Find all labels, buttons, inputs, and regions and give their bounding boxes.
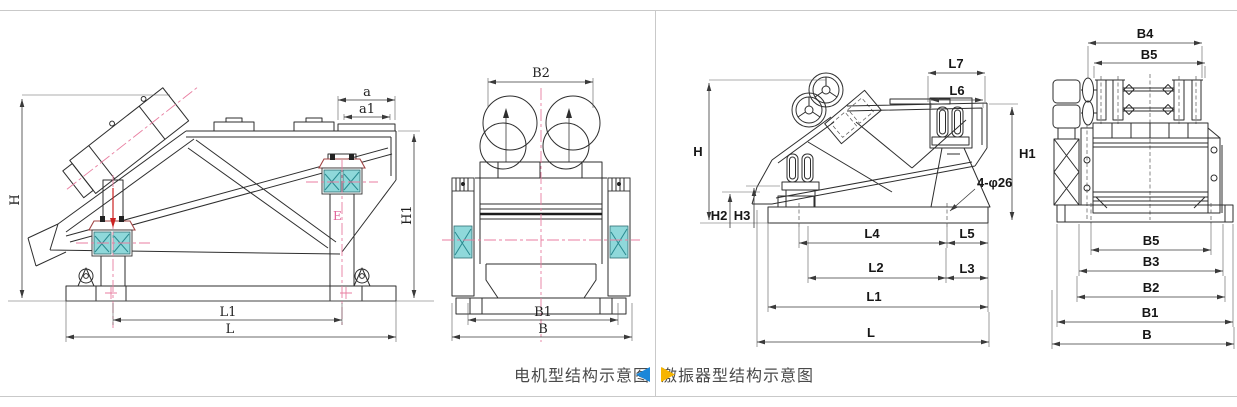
dim-label-H: H <box>8 194 23 205</box>
dim-label-L1: L1 <box>866 289 881 304</box>
dim-label-L5: L5 <box>959 226 974 241</box>
dim-label-B: B <box>1142 327 1151 342</box>
dim-label-a: a <box>363 85 371 100</box>
dim-label-B1: B1 <box>534 305 552 320</box>
dim-label-B2: B2 <box>532 66 550 81</box>
dim-label-L2: L2 <box>868 260 883 275</box>
dim-label-L7: L7 <box>948 56 963 71</box>
dim-label-L3: L3 <box>959 261 974 276</box>
dim-label-L: L <box>867 325 875 340</box>
dim-label-B4: B4 <box>1137 26 1154 41</box>
screen-body-exciter-front <box>1093 123 1222 213</box>
prev-arrow-icon[interactable] <box>636 367 650 382</box>
dim-label-L: L <box>226 322 235 337</box>
drive-motor <box>1053 80 1080 139</box>
dim-label-H2: H2 <box>711 208 728 223</box>
dim-label-H: H <box>693 144 702 159</box>
dim-label-B5-bottom: B5 <box>1143 233 1160 248</box>
dim-label-B2: B2 <box>1143 280 1160 295</box>
dim-label-H1: H1 <box>1019 146 1036 161</box>
dim-label-a1: a1 <box>359 102 375 117</box>
belt-pulleys <box>1081 78 1097 125</box>
dim-label-L4: L4 <box>864 226 880 241</box>
right-side-spring-channel <box>608 178 630 296</box>
motor-type-side-view-drawing: E H H1 a a1 L1 L <box>0 10 440 360</box>
right-caption: 激振器型结构示意图 <box>661 363 1221 385</box>
base-frame <box>66 268 396 301</box>
base-plate <box>768 196 988 227</box>
diagram-page: E H H1 a a1 L1 L <box>0 0 1237 407</box>
motor-stand <box>1054 124 1093 222</box>
bolt-hole-note: 4-φ26 <box>977 175 1012 190</box>
left-side-spring-channel <box>452 178 474 296</box>
motor-type-front-view-drawing: B2 B1 B <box>440 10 660 360</box>
right-caption-label: 激振器型结构示意图 <box>661 362 814 386</box>
dim-label-B: B <box>538 322 548 337</box>
dim-label-E: E <box>333 209 342 223</box>
dim-label-L1: L1 <box>220 305 237 320</box>
left-caption: 电机型结构示意图 <box>0 363 650 385</box>
dim-label-H1: H1 <box>400 205 415 225</box>
dim-label-B3: B3 <box>1143 254 1160 269</box>
dim-label-B5-top: B5 <box>1141 47 1158 62</box>
dim-label-B1: B1 <box>1142 305 1159 320</box>
next-arrow-icon[interactable] <box>661 367 675 382</box>
left-caption-label: 电机型结构示意图 <box>514 362 650 386</box>
dim-label-L6: L6 <box>949 83 964 98</box>
exciter-type-front-view-drawing: B4 B5 B5 B3 B2 B1 B <box>1050 10 1237 360</box>
flywheels <box>792 73 843 127</box>
dim-label-H3: H3 <box>734 208 751 223</box>
bottom-frame-line <box>0 396 1237 397</box>
centerlines <box>442 88 640 342</box>
dimensions-exciter-side: H H1 H2 H3 L7 L6 4-φ26 L4 L5 L2 L3 L1 L <box>693 56 1035 347</box>
exciter-type-side-view-drawing: H H1 H2 H3 L7 L6 4-φ26 L4 L5 L2 L3 L1 L <box>660 10 1050 360</box>
right-coil-springs <box>932 107 969 145</box>
